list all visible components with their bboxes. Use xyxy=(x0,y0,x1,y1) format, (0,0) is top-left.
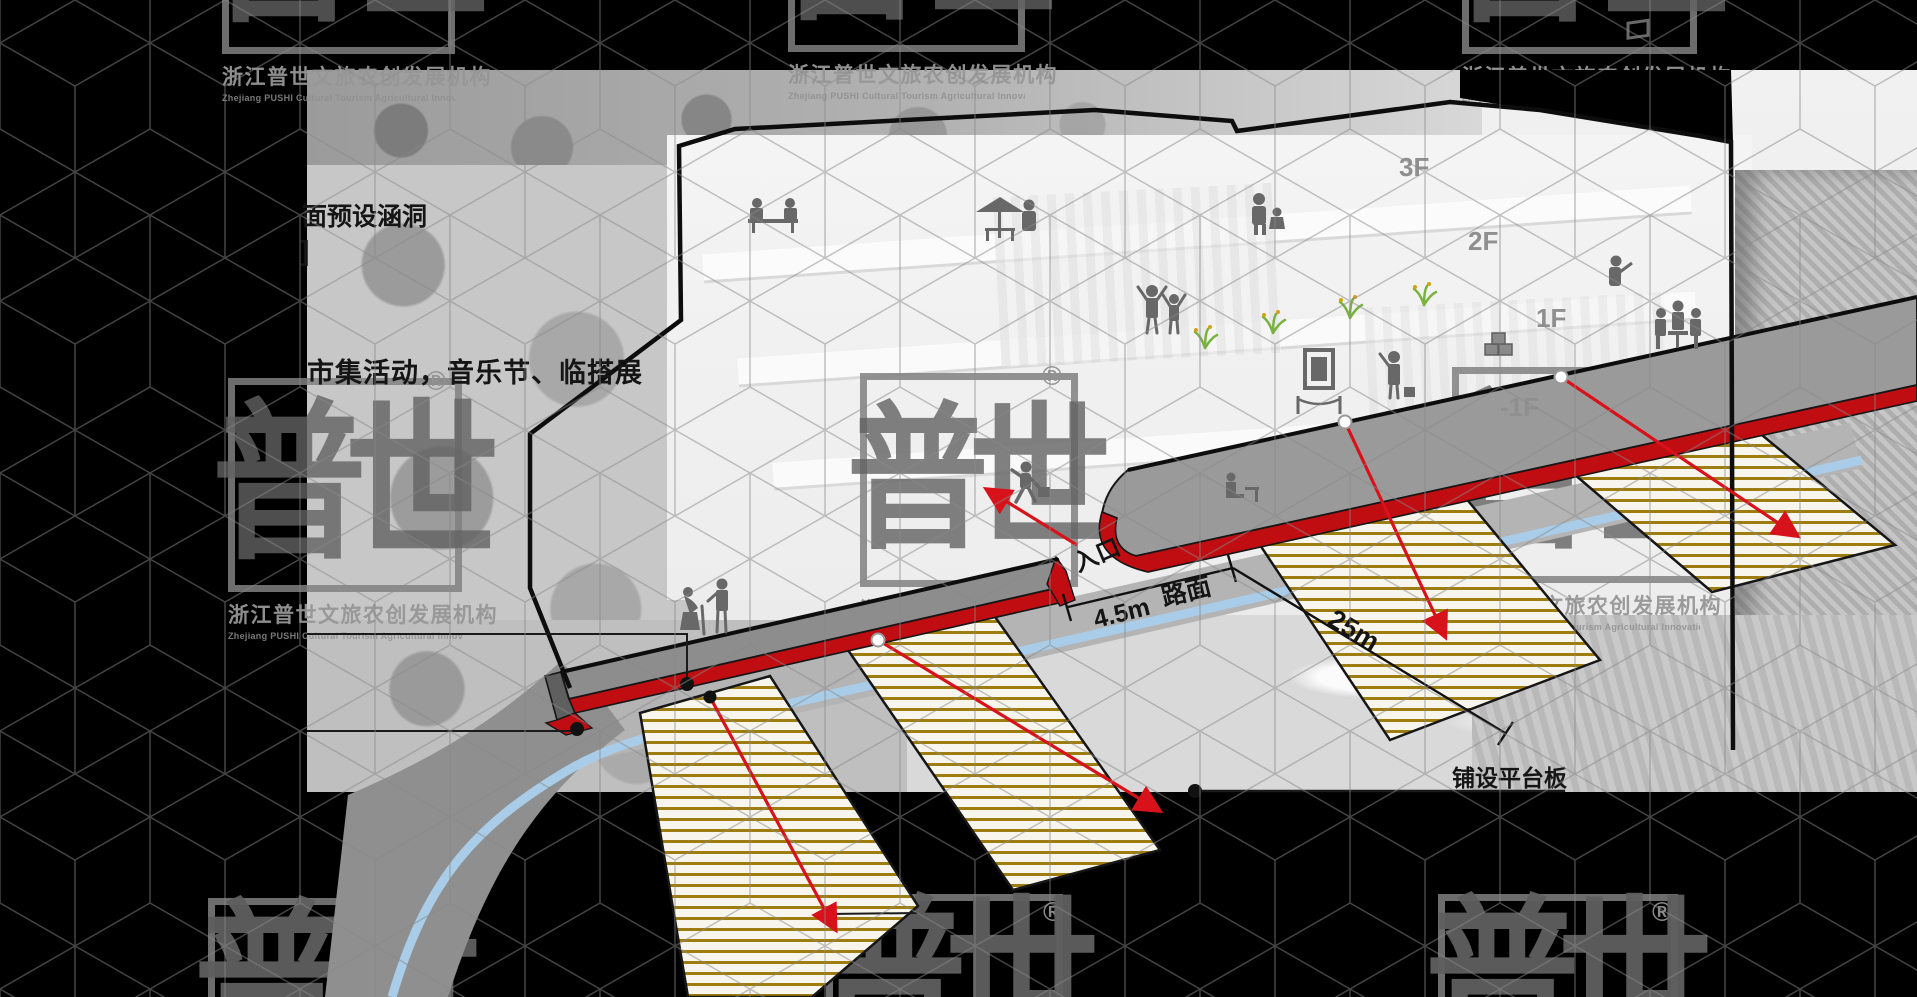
route-dot-deck4 xyxy=(1555,371,1568,384)
entrance-label: 入口 xyxy=(1070,534,1125,578)
cheering-people-icon xyxy=(1138,285,1185,333)
note-events: 市集活动，音乐节、临搭展 xyxy=(307,351,643,390)
umbrella-cafe-icon xyxy=(976,197,1036,241)
route-dot-deck2 xyxy=(872,634,885,647)
floor-label-3f: 3F xyxy=(1399,152,1429,183)
leader-dot-2 xyxy=(570,722,584,736)
grass-seed-dots xyxy=(1194,282,1431,332)
meeting-table-icon xyxy=(748,198,798,233)
slide-canvas: 入口 4.5m 路面 25m 面预设涵洞 ] 市集活动，音乐节、临搭展 铺设平台… xyxy=(0,0,1917,997)
grass-tuft-icon xyxy=(1195,286,1436,348)
route-dot-deck3 xyxy=(1339,416,1352,429)
deck-platform-2 xyxy=(848,614,1160,890)
leader-dot-1 xyxy=(680,677,694,691)
leader-dot-paving xyxy=(1188,784,1202,798)
floor-label-b1f: -1F xyxy=(1500,392,1539,423)
note-culvert-fragment: ] xyxy=(300,235,309,267)
deck-platform-1 xyxy=(640,676,918,997)
waving-traveler-icon xyxy=(1380,351,1415,398)
floor-label-2f: 2F xyxy=(1468,226,1498,257)
walking-traveler-icon xyxy=(1012,462,1050,503)
stacked-boxes-icon xyxy=(1485,333,1512,355)
leader-line-deck1 xyxy=(828,913,917,914)
presenter-board-icon xyxy=(1609,20,1648,286)
note-culvert: 面预设涵洞 xyxy=(302,197,427,233)
elder-care-icon xyxy=(680,579,728,635)
floor-label-1f: 1F xyxy=(1536,303,1566,334)
note-platform-paving: 铺设平台板 xyxy=(1452,759,1567,793)
family-icon xyxy=(1252,193,1285,235)
route-dot-deck1 xyxy=(704,691,717,704)
standing-meeting-icon xyxy=(1655,301,1701,350)
poster-stanchion-icon xyxy=(1298,350,1340,414)
annotation-diagram: 入口 4.5m 路面 25m xyxy=(0,0,1917,997)
